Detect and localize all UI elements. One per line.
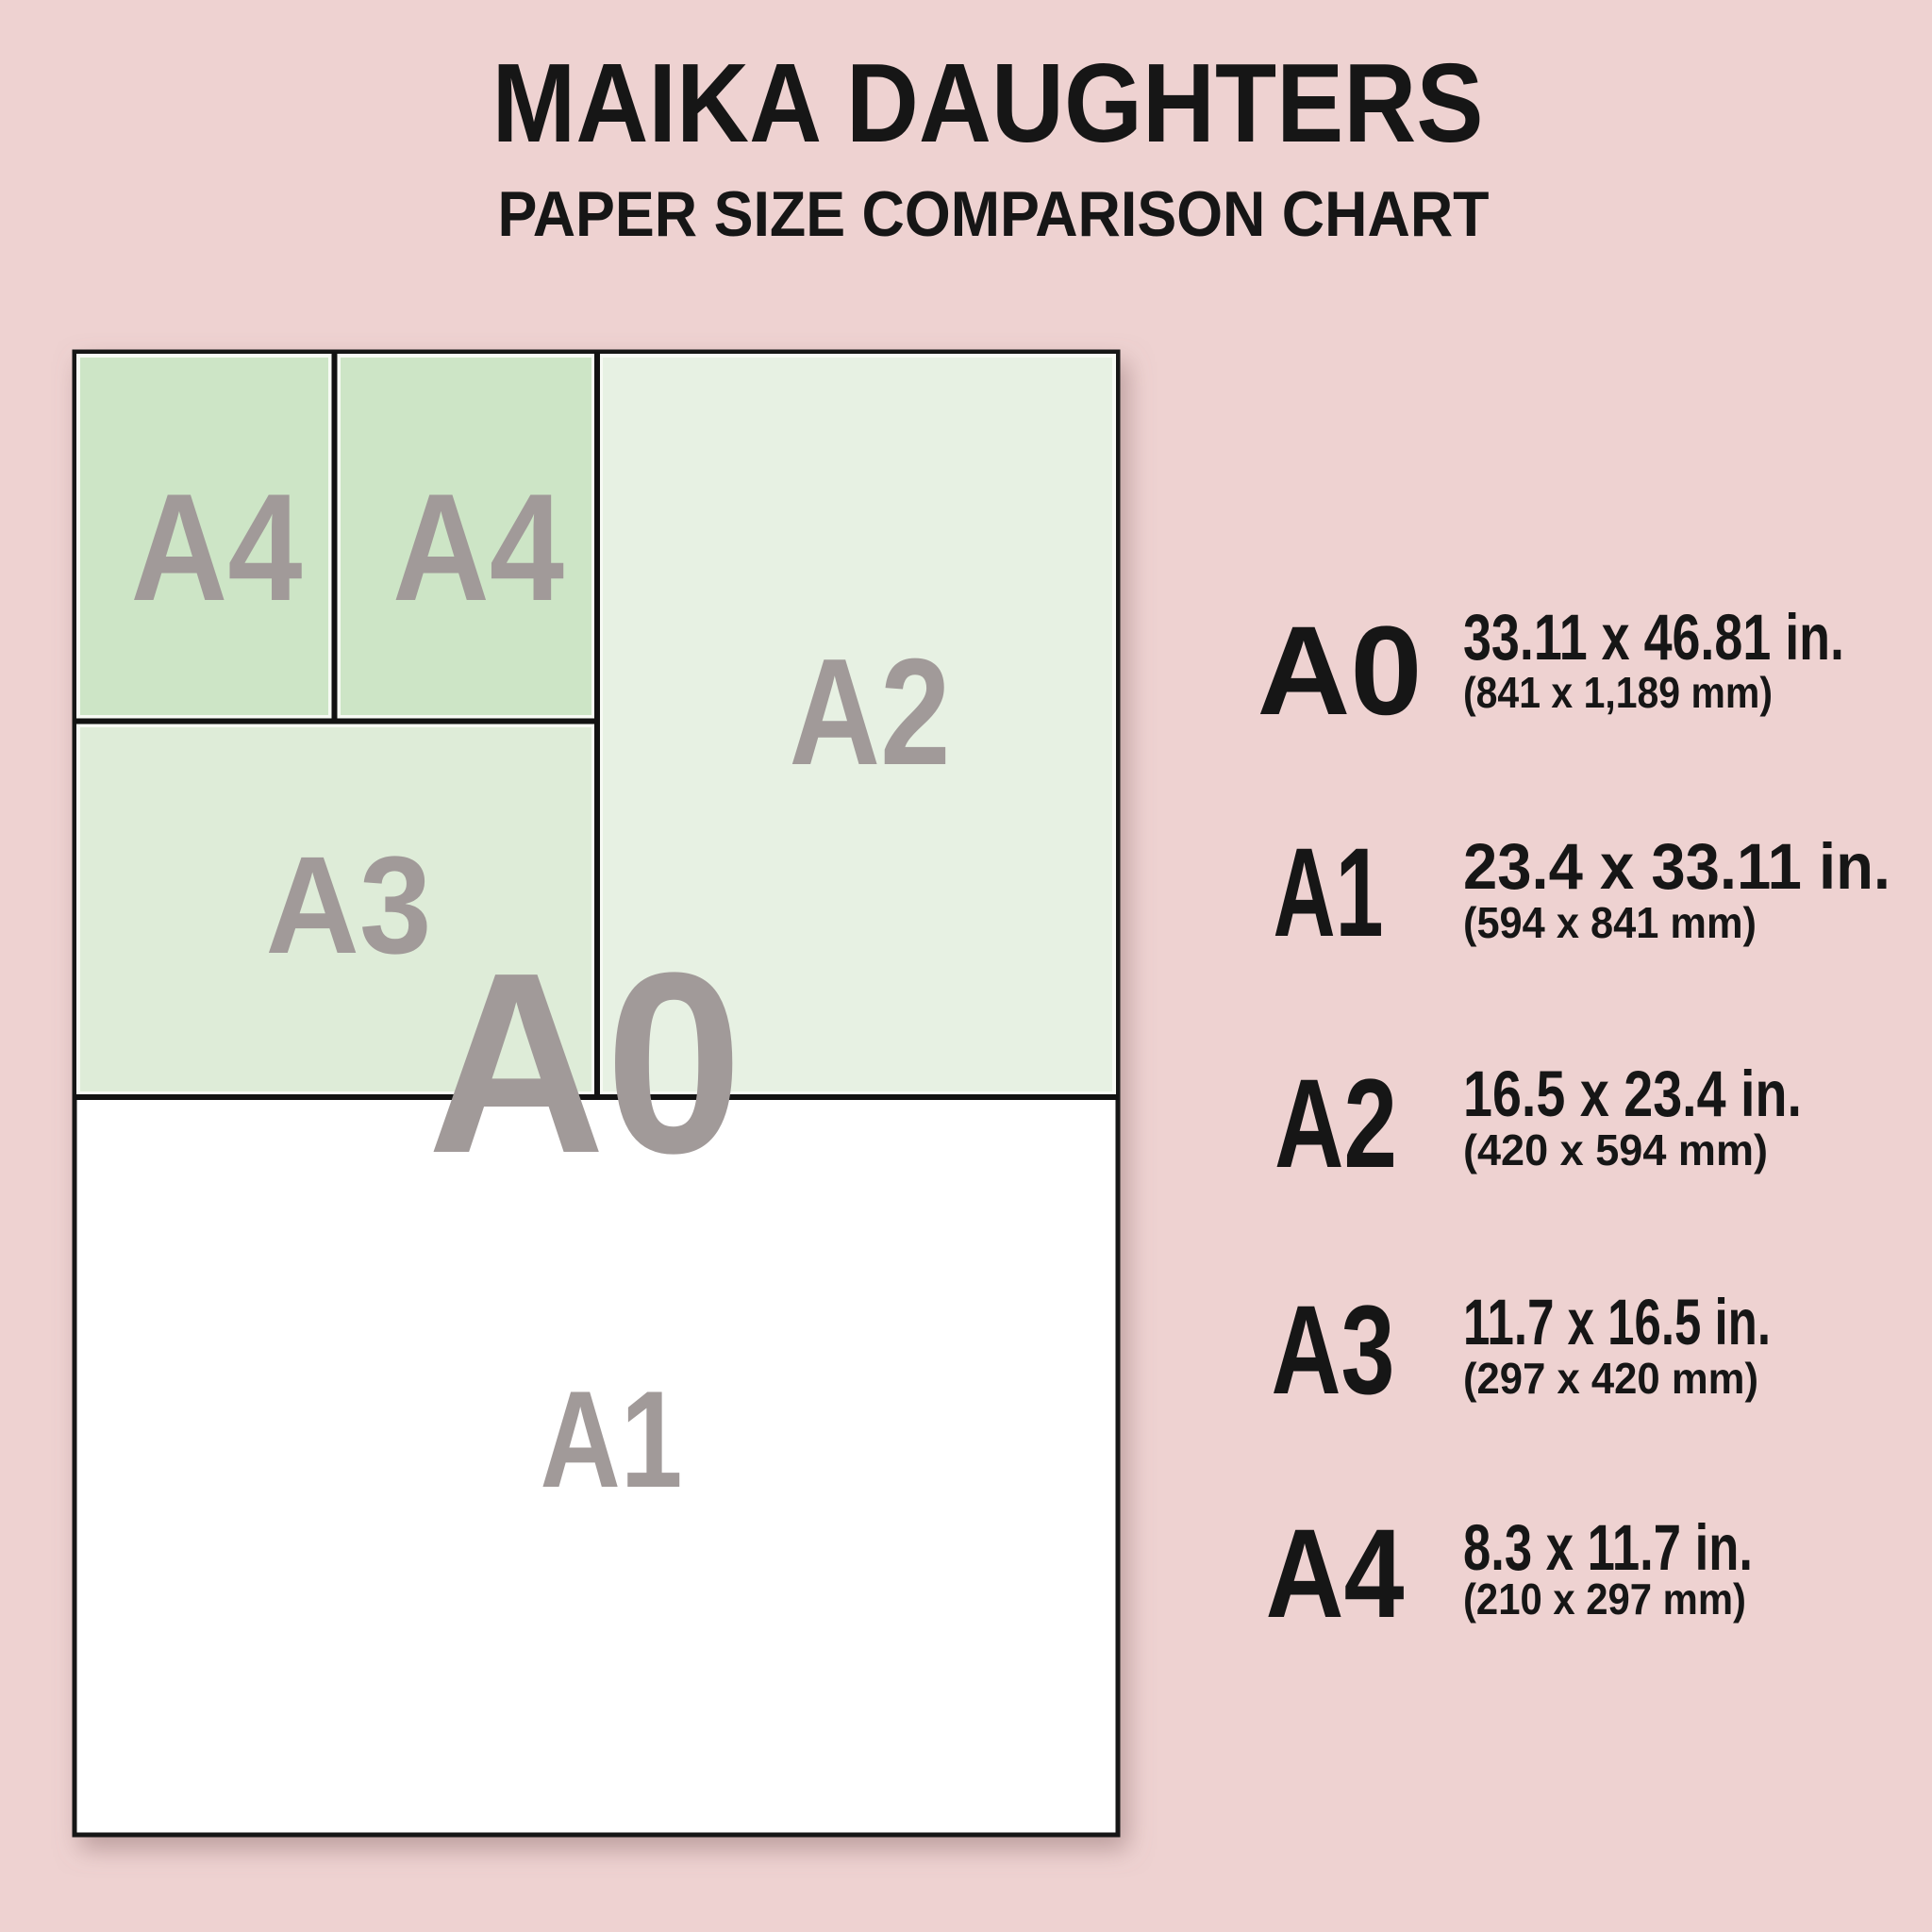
svg-text:A2: A2 [1274,1054,1397,1194]
svg-text:(297 x 420 mm): (297 x 420 mm) [1463,1354,1758,1403]
svg-text:MAIKA DAUGHTERS: MAIKA DAUGHTERS [492,41,1484,166]
svg-text:(210 x 297 mm): (210 x 297 mm) [1463,1574,1746,1624]
svg-text:A1: A1 [541,1362,683,1516]
svg-text:A3: A3 [266,828,432,983]
svg-text:A4: A4 [392,462,564,633]
svg-text:A3: A3 [1272,1280,1395,1421]
svg-text:A4: A4 [1266,1504,1405,1644]
svg-text:8.3 x 11.7 in.: 8.3 x 11.7 in. [1463,1511,1753,1584]
svg-text:(841 x 1,189 mm): (841 x 1,189 mm) [1463,668,1773,717]
svg-text:A4: A4 [131,462,303,633]
svg-text:A1: A1 [1274,823,1384,963]
svg-text:A0: A0 [1257,601,1423,741]
svg-text:(420 x 594 mm): (420 x 594 mm) [1463,1125,1768,1174]
svg-text:33.11 x 46.81 in.: 33.11 x 46.81 in. [1463,601,1844,674]
svg-text:23.4 x 33.11 in.: 23.4 x 33.11 in. [1463,830,1890,903]
svg-text:(594 x 841 mm): (594 x 841 mm) [1463,898,1757,947]
svg-text:PAPER SIZE COMPARISON CHART: PAPER SIZE COMPARISON CHART [498,178,1490,250]
svg-text:16.5 x 23.4 in.: 16.5 x 23.4 in. [1463,1058,1802,1130]
svg-text:11.7 x 16.5 in.: 11.7 x 16.5 in. [1463,1286,1771,1358]
svg-text:A2: A2 [790,627,951,797]
svg-text:A0: A0 [427,919,742,1207]
